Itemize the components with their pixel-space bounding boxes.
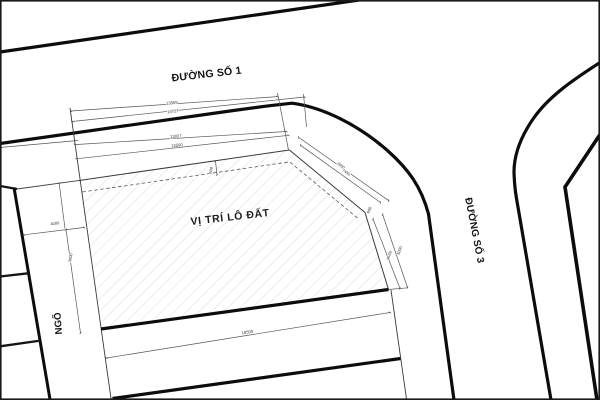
svg-text:13500: 13500 — [171, 142, 184, 148]
svg-text:NGÕ: NGÕ — [52, 312, 65, 335]
svg-text:13027: 13027 — [170, 133, 183, 139]
